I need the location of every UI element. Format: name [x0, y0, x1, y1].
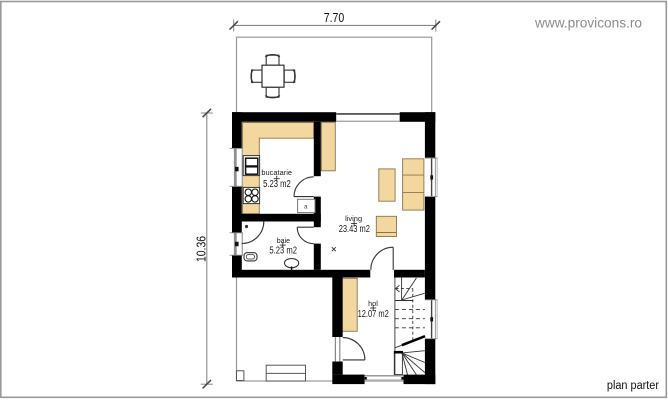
svg-text:www.provicons.ro: www.provicons.ro	[534, 16, 642, 31]
svg-text:living: living	[345, 214, 362, 223]
svg-text:7.70: 7.70	[324, 10, 345, 25]
svg-text:5.23 m2: 5.23 m2	[269, 246, 297, 257]
svg-text:baie: baie	[277, 236, 290, 245]
svg-text:plan parter: plan parter	[607, 380, 659, 392]
svg-text:10.36: 10.36	[193, 236, 208, 262]
svg-text:a: a	[304, 203, 308, 210]
